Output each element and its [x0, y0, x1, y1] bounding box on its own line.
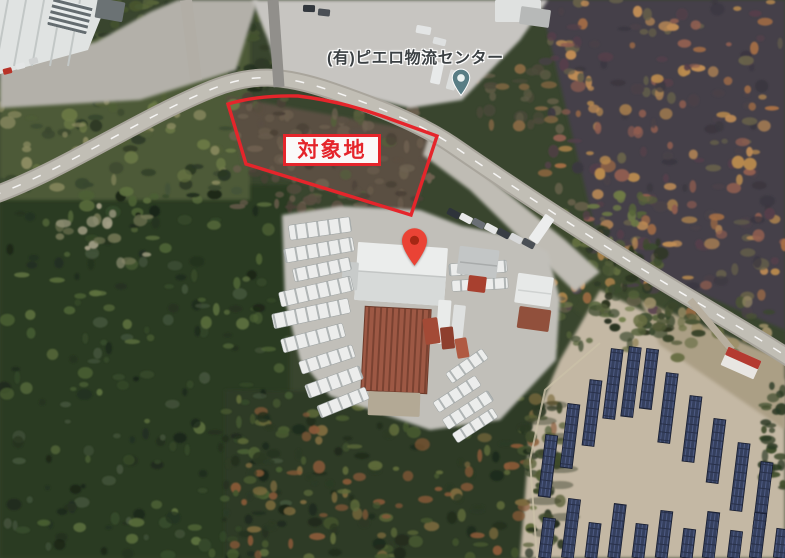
location-pin-icon[interactable] — [402, 228, 427, 266]
target-area-label-text: 対象地 — [298, 140, 367, 161]
satellite-map[interactable]: (有)ピエロ物流センター 対象地 — [0, 0, 785, 558]
target-area-label: 対象地 — [283, 134, 381, 166]
business-pin-icon[interactable] — [451, 68, 471, 97]
business-label: (有)ピエロ物流センター — [327, 44, 504, 68]
satellite-imagery — [0, 0, 785, 558]
